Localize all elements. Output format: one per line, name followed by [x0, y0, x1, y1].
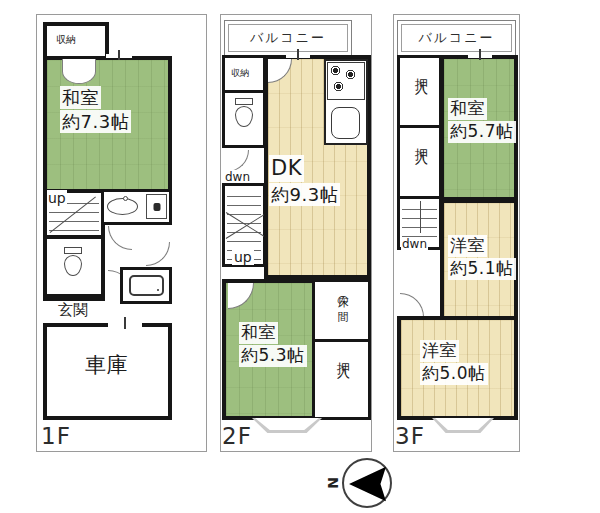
room-3f-yoshitsu-b-name: 洋室	[420, 340, 459, 362]
room-3f-washitsu-labels: 和室 約5.7帖	[448, 98, 516, 144]
room-1f-garage-label: 車庫	[85, 353, 128, 377]
toilet-icon-1f	[63, 247, 83, 276]
room-2f-washitsu-size: 約5.3帖	[239, 345, 307, 367]
stove-burner	[345, 69, 356, 80]
floor-label-1f: 1F	[41, 423, 71, 449]
room-2f-washitsu-name: 和室	[239, 322, 278, 344]
room-2f-oshiire-label: 押入	[334, 352, 352, 358]
room-3f-washitsu-name: 和室	[448, 98, 487, 120]
stove-burner	[330, 65, 341, 76]
basin-icon-1f	[107, 198, 138, 215]
room-1f-garage-labelwrap: 車庫	[85, 352, 128, 379]
bathtub-icon-1f	[129, 275, 164, 296]
room-2f-dk-name: DK	[269, 155, 304, 182]
door-tick-2f-balcony	[297, 49, 299, 60]
balcony-3f: バルコニー	[397, 20, 516, 56]
room-2f-washitsu-labels: 和室 約5.3帖	[239, 322, 307, 368]
room-2f-tokonoma-label: 床の間	[334, 287, 349, 306]
stairs-2f-dwn-label: dwn	[225, 170, 250, 184]
compass-north-label: N	[325, 477, 341, 489]
stove-burner	[333, 81, 344, 92]
toilet-icon-2f	[234, 98, 254, 127]
floor-label-3f: 3F	[395, 423, 425, 449]
door-tick-3f-balcony	[479, 49, 481, 60]
washer-icon-1f	[146, 194, 167, 219]
floorplan-canvas: 収納 和室 約7.3帖 up 玄関 車庫 1F	[0, 0, 600, 513]
wall-genkan-1f	[43, 294, 103, 297]
room-3f-oshiire-lower	[397, 125, 442, 199]
room-1f-closet-label: 収納	[56, 33, 76, 47]
floor-label-2f: 2F	[222, 423, 252, 449]
room-2f-dk-labels: DK 約9.3帖	[269, 155, 340, 207]
room-3f-washitsu-size: 約5.7帖	[448, 121, 516, 143]
window-tick-1f	[118, 50, 120, 60]
door-arc-1f-closet	[62, 59, 96, 84]
room-3f-yoshitsu-b-labels: 洋室 約5.0帖	[420, 340, 488, 386]
balcony-2f: バルコニー	[224, 20, 352, 56]
room-1f-washitsu-size: 約7.3帖	[60, 110, 131, 133]
room-3f-oshiire-lower-label: 押入	[412, 138, 430, 144]
balcony-2f-label: バルコニー	[225, 29, 351, 47]
room-3f-yoshitsu-a-name: 洋室	[448, 235, 487, 257]
balcony-3f-label: バルコニー	[398, 29, 515, 47]
room-3f-oshiire-upper	[397, 55, 442, 128]
room-1f-genkan-label: 玄関	[58, 301, 88, 320]
stairs-1f-up-label: up	[47, 190, 67, 206]
door-tick-1f-garage	[124, 317, 126, 329]
room-1f-washitsu-name: 和室	[60, 86, 101, 109]
kitchen-sink-icon-2f	[331, 107, 360, 139]
stairs-3f-dwn-label: dwn	[401, 237, 428, 251]
room-1f-washitsu-labels: 和室 約7.3帖	[60, 86, 131, 134]
north-arrow-icon	[349, 466, 386, 502]
room-3f-yoshitsu-a-labels: 洋室 約5.1帖	[448, 235, 516, 281]
room-3f-yoshitsu-a-size: 約5.1帖	[448, 258, 516, 280]
room-3f-yoshitsu-b-size: 約5.0帖	[420, 363, 488, 385]
room-2f-dk-size: 約9.3帖	[269, 183, 340, 206]
compass	[342, 458, 392, 508]
stairs-2f-up-label: up	[232, 249, 254, 265]
stair-rail-3f	[420, 201, 421, 233]
room-2f-closet-label: 収納	[231, 67, 249, 80]
room-3f-oshiire-upper-label: 押入	[412, 68, 430, 74]
